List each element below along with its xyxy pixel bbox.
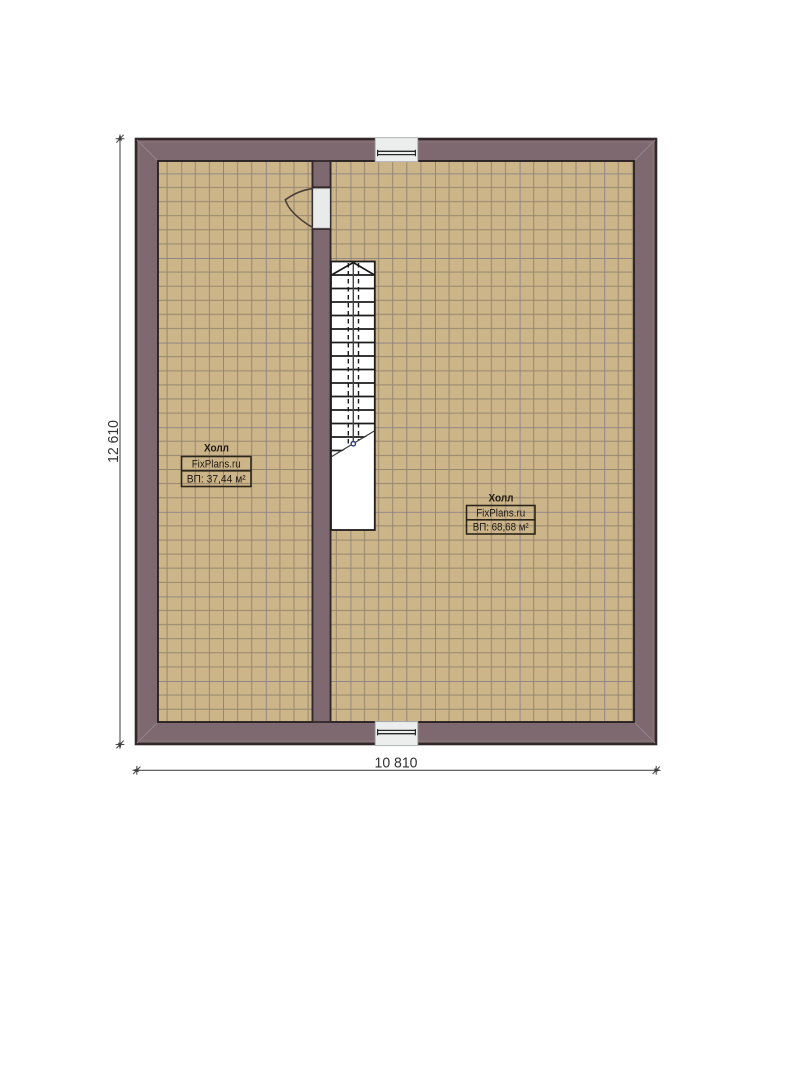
svg-text:ВП: 68,68 м²: ВП: 68,68 м²	[473, 522, 529, 534]
svg-text:FixPlans.ru: FixPlans.ru	[192, 459, 241, 471]
svg-text:FixPlans.ru: FixPlans.ru	[476, 508, 525, 520]
svg-text:10 810: 10 810	[375, 755, 418, 772]
svg-text:12 610: 12 610	[105, 420, 122, 463]
svg-text:Холл: Холл	[489, 493, 514, 505]
svg-text:ВП: 37,44 м²: ВП: 37,44 м²	[187, 474, 246, 486]
svg-text:Холл: Холл	[204, 443, 229, 455]
